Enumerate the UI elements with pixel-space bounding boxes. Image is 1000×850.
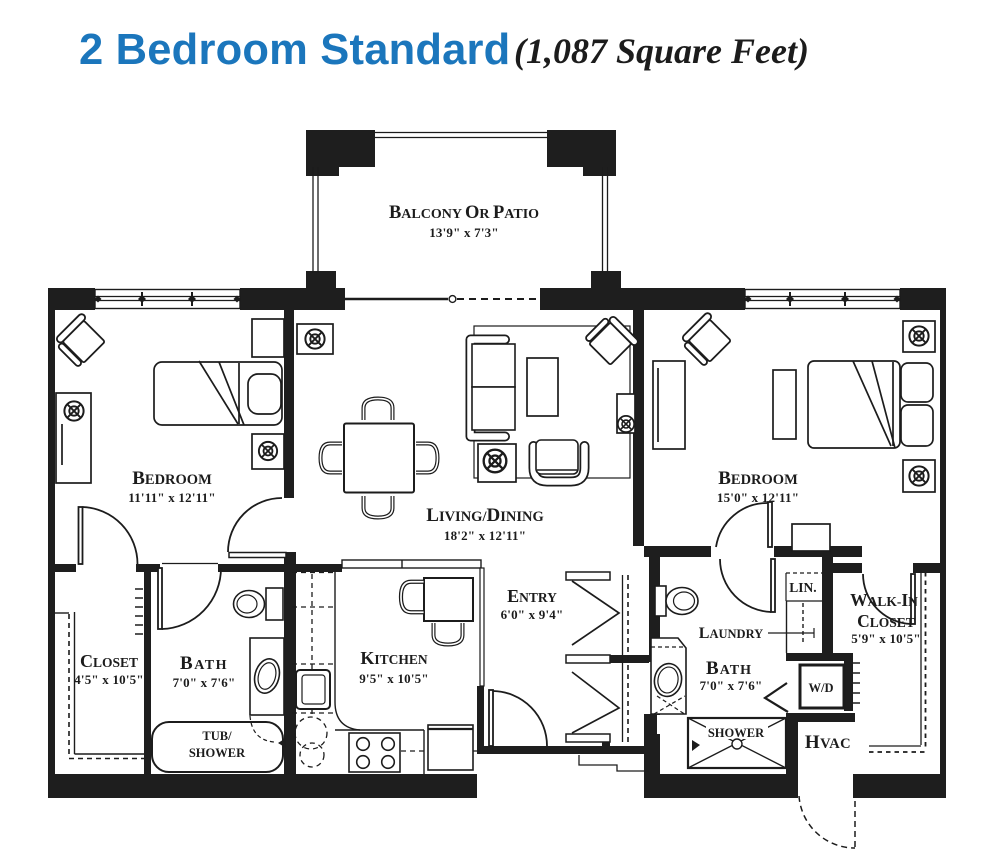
svg-text:HVAC: HVAC [805, 732, 851, 753]
svg-text:4'5" x 10'5": 4'5" x 10'5" [74, 672, 144, 687]
svg-text:6'0" x 9'4": 6'0" x 9'4" [501, 607, 564, 622]
svg-text:BEDROOM: BEDROOM [132, 468, 212, 489]
svg-text:SHOWER: SHOWER [708, 726, 765, 740]
svg-text:LAUNDRY: LAUNDRY [699, 625, 763, 642]
svg-text:9'5" x 10'5": 9'5" x 10'5" [359, 671, 429, 686]
svg-text:13'9" x 7'3": 13'9" x 7'3" [429, 225, 499, 240]
svg-text:15'0" x 12'11": 15'0" x 12'11" [717, 490, 799, 505]
svg-text:7'0" x 7'6": 7'0" x 7'6" [700, 678, 763, 693]
svg-text:BEDROOM: BEDROOM [718, 468, 798, 489]
svg-text:LIN.: LIN. [789, 580, 816, 595]
svg-text:TUB/: TUB/ [202, 729, 232, 743]
svg-text:7'0" x 7'6": 7'0" x 7'6" [173, 675, 236, 690]
svg-text:W/D: W/D [809, 681, 834, 695]
svg-text:LIVING/DINING: LIVING/DINING [426, 505, 543, 526]
svg-text:5'9" x 10'5": 5'9" x 10'5" [851, 631, 921, 646]
svg-text:11'11" x 12'11": 11'11" x 12'11" [128, 490, 216, 505]
svg-text:2 Bedroom Standard: 2 Bedroom Standard [79, 26, 510, 74]
svg-text:SHOWER: SHOWER [189, 746, 246, 760]
svg-text:18'2" x 12'11": 18'2" x 12'11" [444, 528, 526, 543]
svg-text:(1,087 Square Feet): (1,087 Square Feet) [514, 31, 809, 71]
